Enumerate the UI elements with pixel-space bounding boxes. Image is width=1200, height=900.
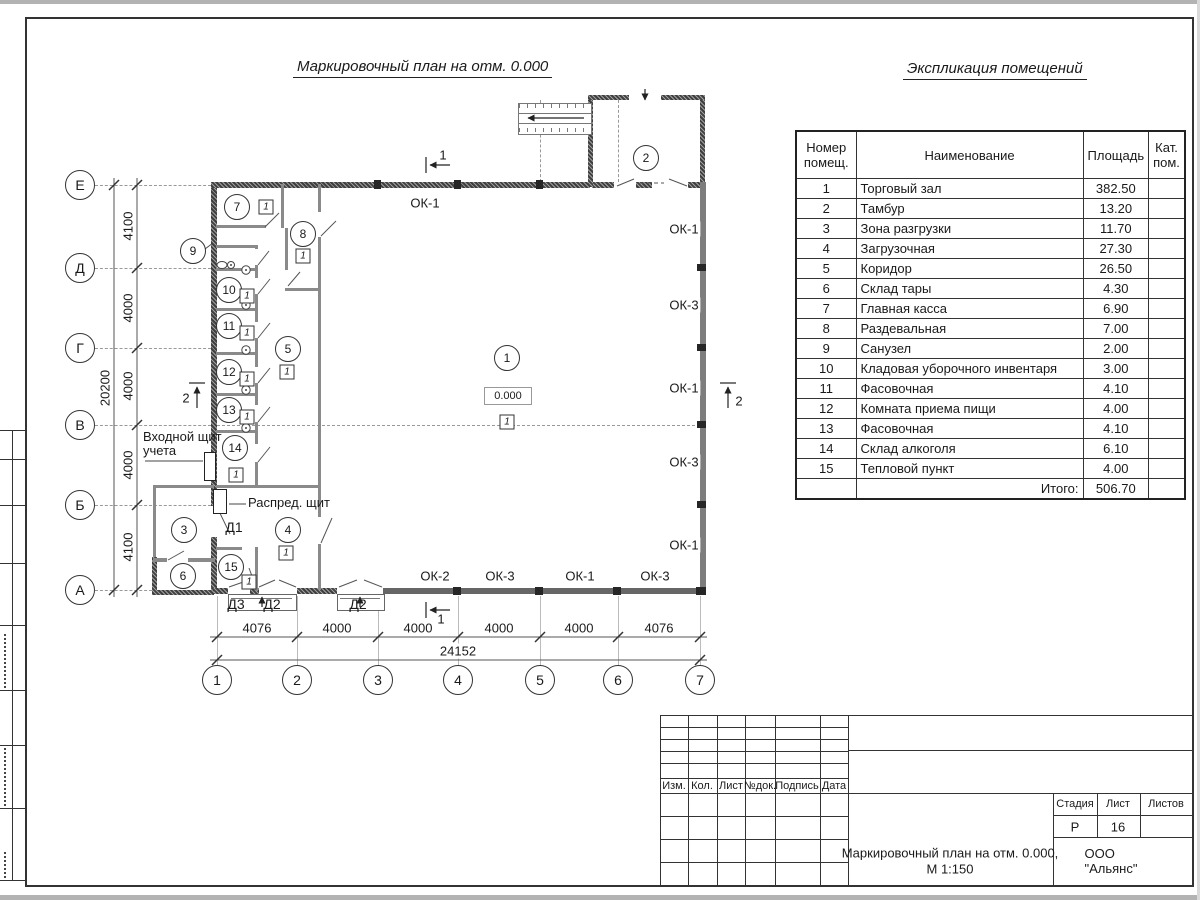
sheet-value: 16: [1111, 820, 1125, 835]
dimension-total-left: 20200: [98, 370, 113, 406]
door-label: Д3: [227, 596, 244, 612]
door-label: Д2: [263, 596, 280, 612]
room-area-cell: 27.30: [1083, 239, 1149, 259]
section-mark-label: 1: [439, 148, 446, 163]
doc-title-line2: М 1:150: [927, 862, 974, 877]
room-name-cell: Торговый зал: [856, 179, 1083, 199]
room-cat-cell: [1149, 279, 1185, 299]
section-mark-label: 2: [182, 391, 189, 406]
floor-type-tag: 1: [240, 326, 255, 341]
explication-row: 2 Тамбур 13.20: [796, 199, 1185, 219]
room-name-cell: Тамбур: [856, 199, 1083, 219]
dimension-label: 4000: [483, 621, 516, 636]
room-area-cell: 4.00: [1083, 399, 1149, 419]
revision-header-label: №док.: [744, 780, 776, 792]
explication-row: 7 Главная касса 6.90: [796, 299, 1185, 319]
explication-title: Экспликация помещений: [903, 60, 1087, 80]
room-cat-cell: [1149, 379, 1185, 399]
room-area-cell: 4.30: [1083, 279, 1149, 299]
col-header-area: Площадь: [1083, 131, 1149, 179]
dimension-label: 4000: [121, 294, 136, 323]
explication-row: 1 Торговый зал 382.50: [796, 179, 1185, 199]
explication-row: 6 Склад тары 4.30: [796, 279, 1185, 299]
room-number-cell: 1: [796, 179, 856, 199]
total-label: Итого:: [856, 479, 1083, 500]
room-name-cell: Кладовая уборочного инвентаря: [856, 359, 1083, 379]
room-number-bubble: 13: [216, 397, 242, 423]
dimension-label: 4100: [121, 533, 136, 562]
elevation-mark: 0.000: [484, 387, 532, 405]
room-number-bubble: 2: [633, 145, 659, 171]
axis-bubble: Г: [65, 333, 95, 363]
room-number-bubble: 1: [494, 345, 520, 371]
explication-row: 15 Тепловой пункт 4.00: [796, 459, 1185, 479]
sheets-label: Листов: [1148, 798, 1184, 810]
floor-type-tag: 1: [296, 249, 311, 264]
room-number-cell: 3: [796, 219, 856, 239]
axis-bubble: Б: [65, 490, 95, 520]
stage-label: Стадия: [1056, 798, 1094, 810]
window-label: ОК-2: [418, 569, 451, 584]
revision-header-label: Изм.: [662, 780, 686, 792]
distribution-panel-symbol: [213, 489, 227, 514]
room-area-cell: 11.70: [1083, 219, 1149, 239]
room-area-cell: 3.00: [1083, 359, 1149, 379]
room-number-bubble: 10: [216, 277, 242, 303]
room-number-cell: 10: [796, 359, 856, 379]
floor-type-tag: 1: [240, 289, 255, 304]
col-header-name: Наименование: [856, 131, 1083, 179]
room-number-bubble: 7: [224, 194, 250, 220]
axis-bubble: 1: [202, 665, 232, 695]
room-cat-cell: [1149, 239, 1185, 259]
room-number-bubble: 12: [216, 359, 242, 385]
floor-type-tag: 1: [242, 575, 257, 590]
explication-row: 4 Загрузочная 27.30: [796, 239, 1185, 259]
room-name-cell: Склад алкоголя: [856, 439, 1083, 459]
room-number-cell: 2: [796, 199, 856, 219]
dimension-label: 4000: [121, 451, 136, 480]
room-number-cell: 13: [796, 419, 856, 439]
room-area-cell: 4.00: [1083, 459, 1149, 479]
revision-header-label: Кол.: [691, 780, 713, 792]
company-name: ООО "Альянс": [1085, 846, 1162, 876]
room-number-cell: 6: [796, 279, 856, 299]
room-cat-cell: [1149, 339, 1185, 359]
room-number-cell: 15: [796, 459, 856, 479]
axis-bubble: 7: [685, 665, 715, 695]
room-cat-cell: [1149, 459, 1185, 479]
room-area-cell: 7.00: [1083, 319, 1149, 339]
floor-type-tag: 1: [240, 372, 255, 387]
room-area-cell: 6.10: [1083, 439, 1149, 459]
room-cat-cell: [1149, 439, 1185, 459]
window-label: ОК-3: [667, 455, 700, 470]
window-label: ОК-1: [667, 381, 700, 396]
dimension-label: 4000: [121, 372, 136, 401]
room-cat-cell: [1149, 399, 1185, 419]
room-name-cell: Фасовочная: [856, 379, 1083, 399]
section-mark-label: 2: [735, 394, 742, 409]
room-area-cell: 382.50: [1083, 179, 1149, 199]
room-number-cell: 7: [796, 299, 856, 319]
explication-row: 10 Кладовая уборочного инвентаря 3.00: [796, 359, 1185, 379]
floor-type-tag: 1: [229, 468, 244, 483]
window-label: ОК-1: [563, 569, 596, 584]
door-label: Д2: [349, 596, 366, 612]
window-label: ОК-3: [483, 569, 516, 584]
explication-row: 9 Санузел 2.00: [796, 339, 1185, 359]
window-label: ОК-3: [638, 569, 671, 584]
room-name-cell: Главная касса: [856, 299, 1083, 319]
room-area-cell: 2.00: [1083, 339, 1149, 359]
room-number-bubble: 5: [275, 336, 301, 362]
dimension-label: 4000: [563, 621, 596, 636]
stage-value: Р: [1071, 820, 1080, 835]
explication-row: 12 Комната приема пищи 4.00: [796, 399, 1185, 419]
explication-row: 8 Раздевальная 7.00: [796, 319, 1185, 339]
axis-bubble: 5: [525, 665, 555, 695]
floor-type-tag: 1: [259, 200, 274, 215]
axis-bubble: А: [65, 575, 95, 605]
explication-row: 11 Фасовочная 4.10: [796, 379, 1185, 399]
room-cat-cell: [1149, 219, 1185, 239]
window-label: ОК-1: [667, 538, 700, 553]
floor-type-tag: 1: [500, 415, 515, 430]
axis-bubble: Д: [65, 253, 95, 283]
room-area-cell: 4.10: [1083, 419, 1149, 439]
explication-total-row: Итого: 506.70: [796, 479, 1185, 500]
axis-bubble: 4: [443, 665, 473, 695]
explication-row: 14 Склад алкоголя 6.10: [796, 439, 1185, 459]
axis-bubble: 3: [363, 665, 393, 695]
room-number-bubble: 9: [180, 238, 206, 264]
room-name-cell: Комната приема пищи: [856, 399, 1083, 419]
room-name-cell: Санузел: [856, 339, 1083, 359]
sheet-label: Лист: [1106, 798, 1130, 810]
door-label: Д1: [225, 519, 242, 535]
drawing-sheet: Маркировочный план на отм. 0.000 Эксплик…: [0, 0, 1200, 900]
floor-type-tag: 1: [240, 410, 255, 425]
room-area-cell: 6.90: [1083, 299, 1149, 319]
room-number-bubble: 14: [222, 435, 248, 461]
room-number-cell: 12: [796, 399, 856, 419]
dimension-label: 4076: [643, 621, 676, 636]
axis-bubble: 6: [603, 665, 633, 695]
explication-row: 3 Зона разгрузки 11.70: [796, 219, 1185, 239]
explication-row: 5 Коридор 26.50: [796, 259, 1185, 279]
doc-title-line1: Маркировочный план на отм. 0.000,: [842, 846, 1059, 861]
axis-bubble: 2: [282, 665, 312, 695]
axis-bubble: Е: [65, 170, 95, 200]
room-number-cell: 8: [796, 319, 856, 339]
room-number-cell: 5: [796, 259, 856, 279]
dimension-label: 4076: [241, 621, 274, 636]
col-header-cat: Кат. пом.: [1149, 131, 1185, 179]
dimension-label: 4000: [321, 621, 354, 636]
room-number-cell: 9: [796, 339, 856, 359]
room-number-bubble: 6: [170, 563, 196, 589]
room-area-cell: 26.50: [1083, 259, 1149, 279]
plan-title: Маркировочный план на отм. 0.000: [293, 58, 552, 78]
dimension-label: 4100: [121, 212, 136, 241]
section-mark-label: 1: [437, 612, 444, 627]
total-value: 506.70: [1083, 479, 1149, 500]
room-number-bubble: 4: [275, 517, 301, 543]
room-cat-cell: [1149, 199, 1185, 219]
explication-table: Номер помещ. Наименование Площадь Кат. п…: [795, 130, 1186, 500]
room-name-cell: Зона разгрузки: [856, 219, 1083, 239]
room-name-cell: Тепловой пункт: [856, 459, 1083, 479]
room-number-cell: 11: [796, 379, 856, 399]
floor-type-tag: 1: [280, 365, 295, 380]
window-label: ОК-3: [667, 298, 700, 313]
room-number-cell: 4: [796, 239, 856, 259]
room-cat-cell: [1149, 299, 1185, 319]
room-number-bubble: 15: [218, 554, 244, 580]
revision-header-label: Лист: [719, 780, 743, 792]
dimension-total-bottom: 24152: [438, 644, 478, 659]
floor-type-tag: 1: [279, 546, 294, 561]
col-header-num: Номер помещ.: [796, 131, 856, 179]
room-cat-cell: [1149, 259, 1185, 279]
explication-row: 13 Фасовочная 4.10: [796, 419, 1185, 439]
room-name-cell: Фасовочная: [856, 419, 1083, 439]
room-number-bubble: 3: [171, 517, 197, 543]
room-number-bubble: 11: [216, 313, 242, 339]
room-cat-cell: [1149, 319, 1185, 339]
room-area-cell: 4.10: [1083, 379, 1149, 399]
entry-panel-note: Входной щитучета: [143, 430, 222, 458]
room-area-cell: 13.20: [1083, 199, 1149, 219]
room-name-cell: Коридор: [856, 259, 1083, 279]
axis-bubble: В: [65, 410, 95, 440]
room-number-bubble: 8: [290, 221, 316, 247]
distribution-panel-note: Распред. щит: [248, 496, 330, 510]
window-label: ОК-1: [408, 196, 441, 211]
dimension-label: 4000: [402, 621, 435, 636]
revision-header-label: Подпись: [775, 780, 819, 792]
room-name-cell: Склад тары: [856, 279, 1083, 299]
room-cat-cell: [1149, 359, 1185, 379]
room-cat-cell: [1149, 179, 1185, 199]
revision-header-label: Дата: [822, 780, 846, 792]
room-cat-cell: [1149, 419, 1185, 439]
room-number-cell: 14: [796, 439, 856, 459]
room-name-cell: Раздевальная: [856, 319, 1083, 339]
room-name-cell: Загрузочная: [856, 239, 1083, 259]
window-label: ОК-1: [667, 222, 700, 237]
